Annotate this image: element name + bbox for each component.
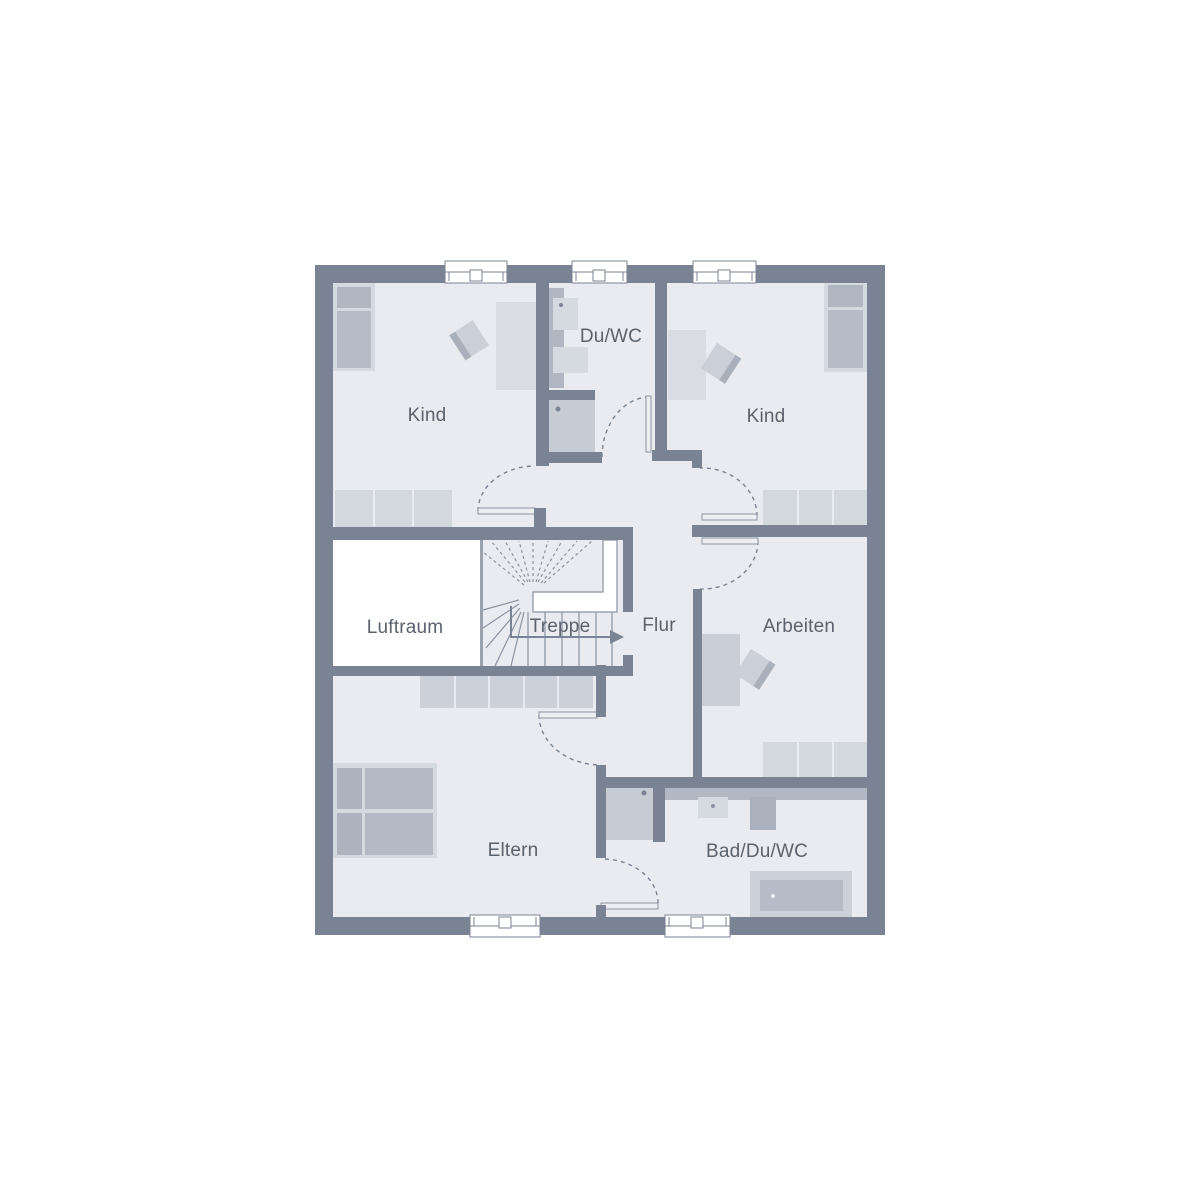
floor-plan-drawing — [0, 0, 1200, 1200]
wall-upper-corridor — [315, 527, 633, 540]
door-leaf-bad — [601, 903, 658, 909]
room-label-du-wc: Du/WC — [580, 326, 642, 348]
door-leaf-kind-left — [478, 508, 535, 514]
wall-flur-arbeiten — [693, 589, 702, 777]
dresser-kind-left — [335, 490, 452, 527]
bath-toilet — [750, 797, 776, 830]
wall-duwc-shower-stub — [549, 390, 595, 400]
bed-kind-right — [824, 281, 867, 372]
door-leaf-kind-right — [702, 514, 757, 520]
room-label-eltern: Eltern — [488, 840, 539, 862]
room-label-kind-right: Kind — [747, 406, 786, 428]
wall-bath-top — [596, 777, 867, 788]
wall-stair-bottom — [315, 666, 633, 676]
bathtub — [750, 871, 852, 917]
outer-wall-left — [315, 265, 333, 935]
bed-eltern — [333, 763, 437, 858]
bed-kind-left — [333, 283, 375, 371]
desk-kind-right — [668, 330, 706, 400]
wall-stair-right — [623, 540, 633, 612]
window-top-2 — [572, 261, 627, 283]
wall-duwc-bottom — [536, 452, 602, 463]
outer-wall-bottom — [315, 917, 885, 935]
window-top-3 — [693, 261, 756, 283]
wall-duwc-kindright — [655, 283, 667, 451]
dresser-kind-right — [763, 490, 867, 525]
room-label-flur: Flur — [642, 615, 676, 637]
window-top-1 — [445, 261, 507, 283]
room-label-luftraum: Luftraum — [367, 617, 444, 639]
duwc-toilet — [553, 347, 588, 373]
luftraum-stair-divider — [480, 540, 483, 666]
desk-arbeiten — [702, 634, 740, 706]
window-bottom-2 — [665, 915, 730, 937]
door-leaf-arbeiten — [702, 538, 758, 544]
door-leaf-du-wc — [646, 396, 651, 452]
room-label-kind-left: Kind — [408, 405, 447, 427]
room-label-bad-du-wc: Bad/Du/WC — [706, 841, 808, 863]
outer-wall-right — [867, 265, 885, 935]
door-leaf-eltern — [539, 712, 597, 718]
dresser-arbeiten — [763, 742, 867, 777]
window-bottom-1 — [470, 915, 540, 937]
sideboard-eltern — [420, 672, 593, 708]
desk-kind-left — [496, 302, 538, 390]
wall-eltern-bath — [596, 765, 606, 858]
duwc-washbasin — [553, 298, 578, 330]
wall-kindleft-duwc — [536, 283, 549, 466]
wall-shower-bath — [653, 788, 665, 842]
luftraum-void — [333, 540, 480, 666]
wall-kindright-arbeiten — [692, 525, 867, 537]
room-label-arbeiten: Arbeiten — [763, 616, 835, 638]
floor-plan-page: Kind Du/WC Kind Luftraum Treppe Flur Arb… — [0, 0, 1200, 1200]
room-label-treppe: Treppe — [530, 616, 591, 638]
